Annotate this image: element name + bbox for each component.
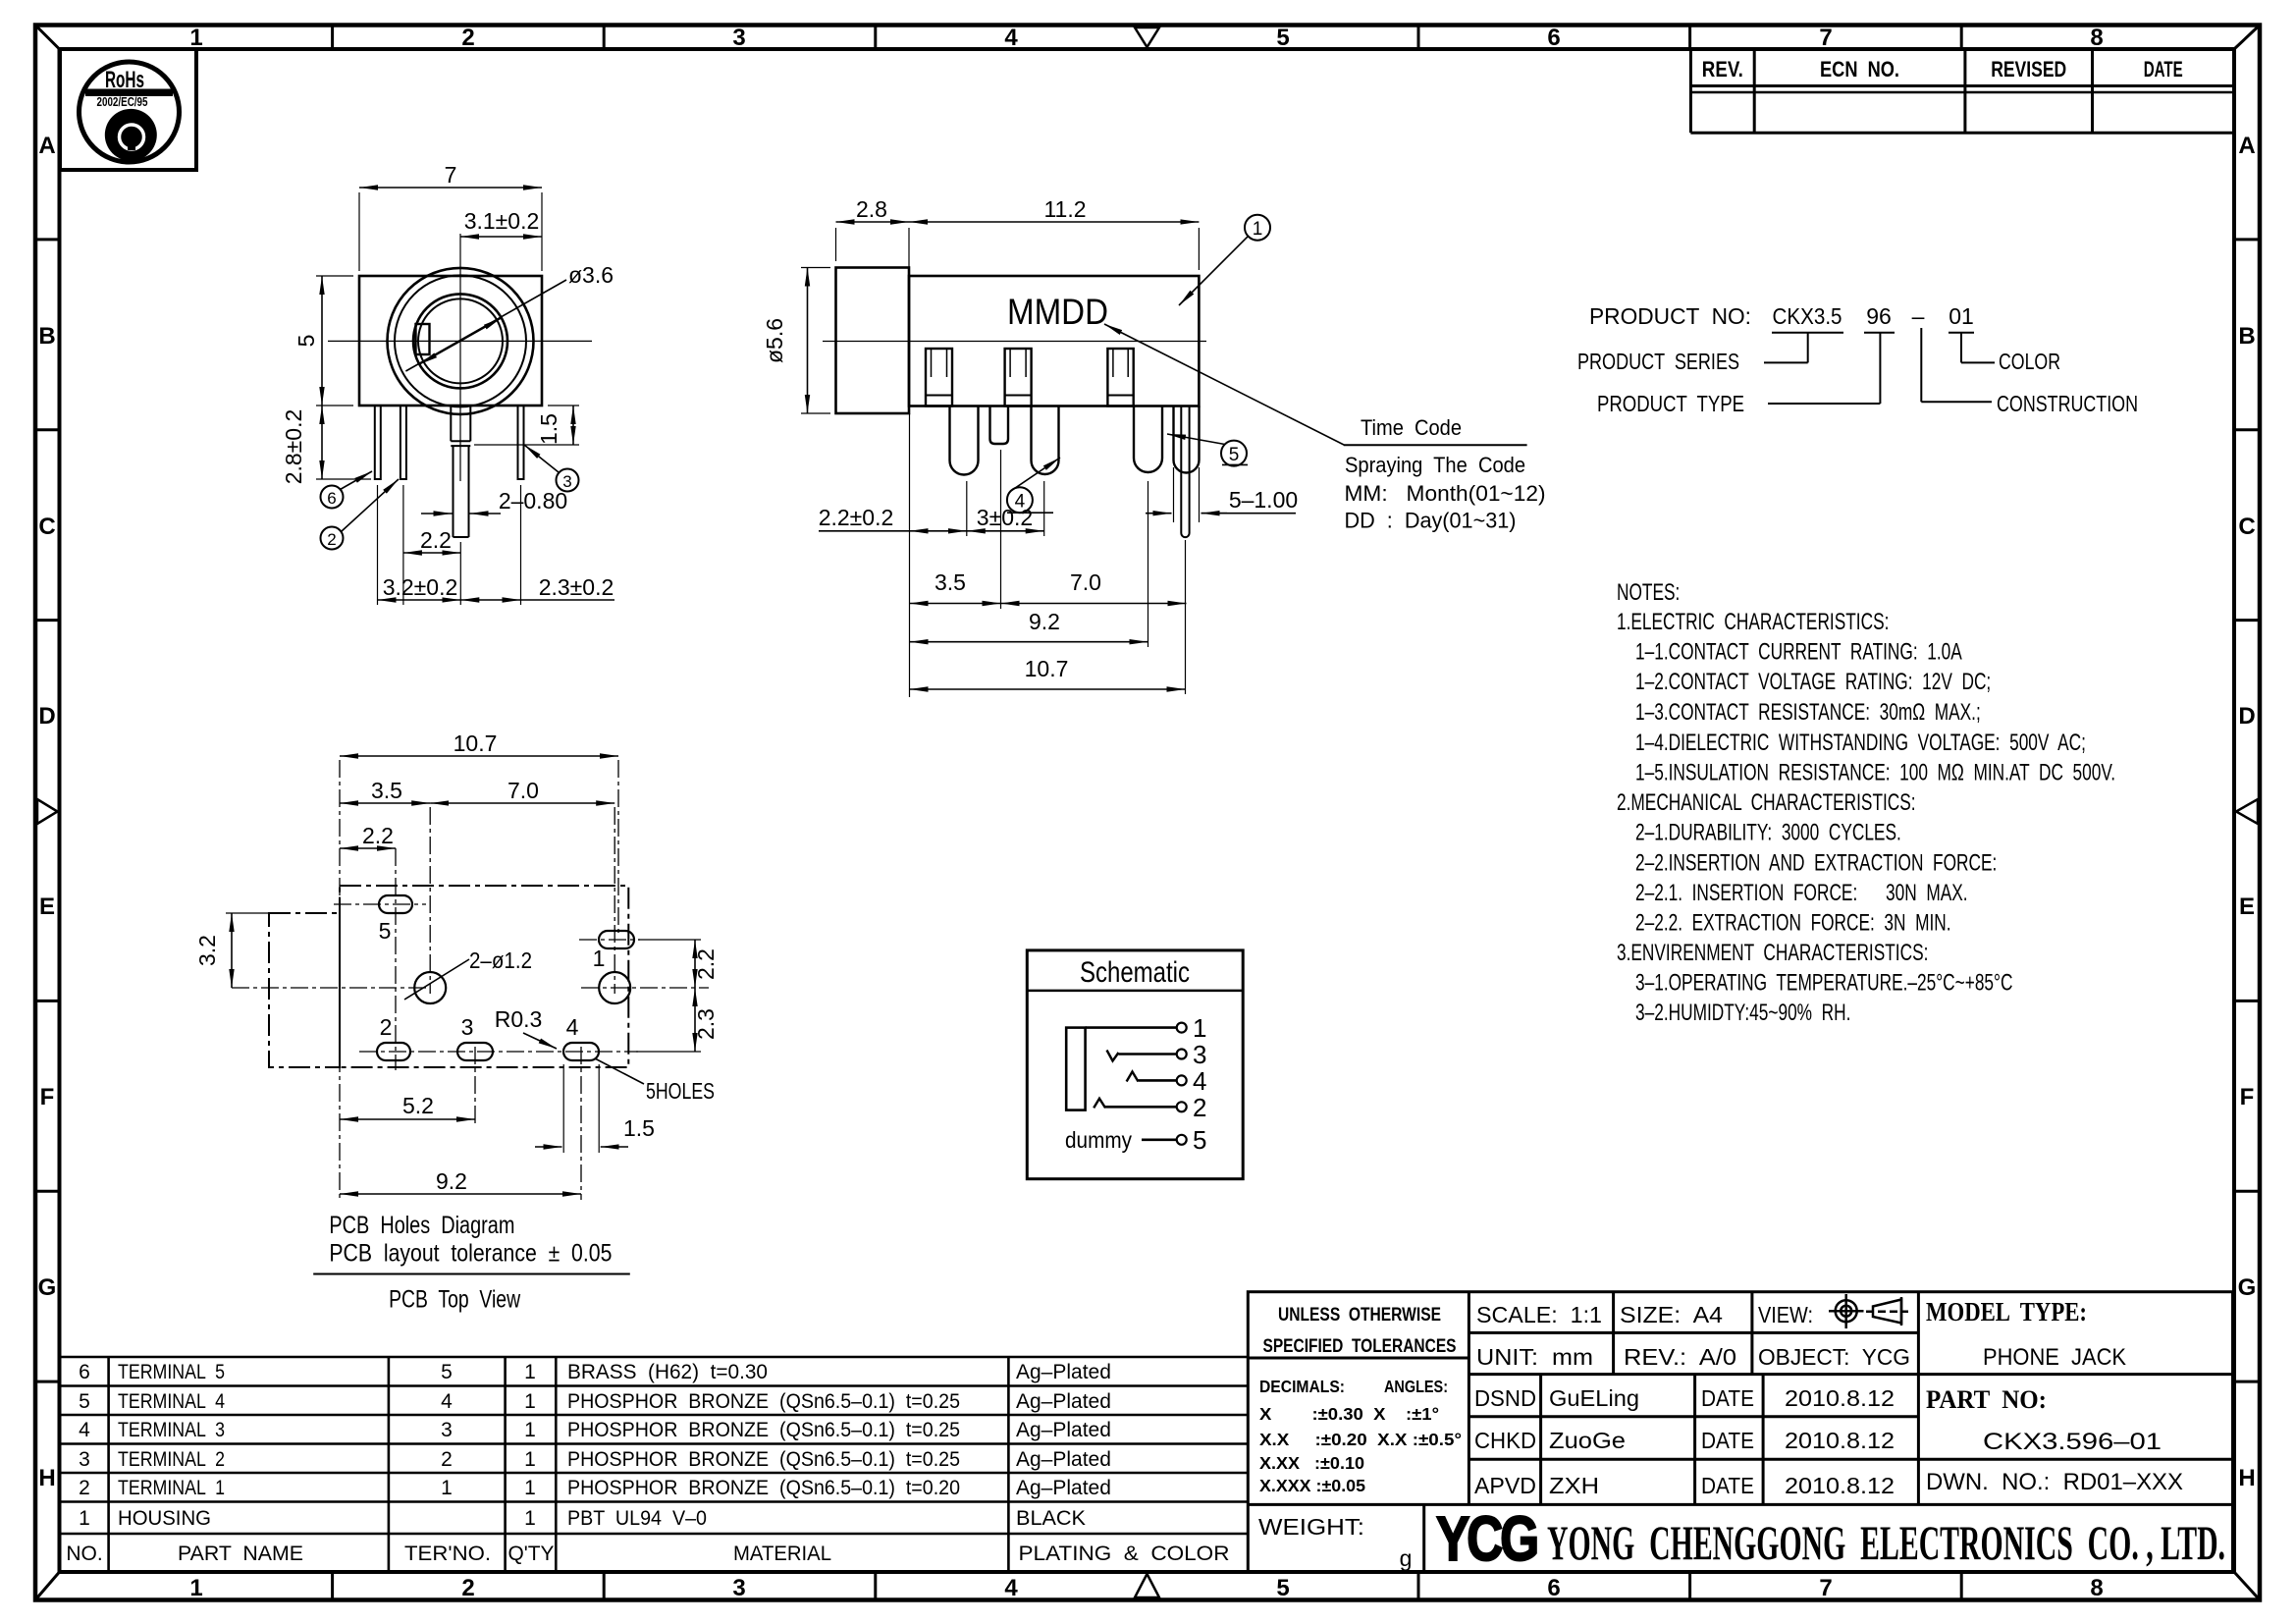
svg-text:3.2: 3.2 xyxy=(194,935,220,966)
svg-text:R0.3: R0.3 xyxy=(495,1006,543,1032)
svg-text:1: 1 xyxy=(1193,1013,1206,1043)
svg-text:DATE: DATE xyxy=(1701,1428,1754,1453)
svg-text:2: 2 xyxy=(79,1477,90,1499)
svg-text:TER'NO.: TER'NO. xyxy=(404,1543,491,1565)
svg-text:G: G xyxy=(2238,1274,2257,1301)
svg-text:6: 6 xyxy=(79,1361,90,1383)
svg-text:E: E xyxy=(2239,893,2255,920)
svg-text:B: B xyxy=(38,323,55,350)
svg-text:1: 1 xyxy=(524,1448,536,1471)
svg-text:REV.: A/0: REV.: A/0 xyxy=(1624,1344,1736,1370)
svg-text:F: F xyxy=(2240,1084,2255,1110)
svg-text:2: 2 xyxy=(461,25,474,51)
svg-text:dummy: dummy xyxy=(1065,1127,1132,1153)
svg-text:X.XXX :±0.05: X.XXX :±0.05 xyxy=(1259,1476,1365,1495)
svg-text:PHOSPHOR BRONZE (QSn6.5–0.1): PHOSPHOR BRONZE (QSn6.5–0.1) t=0.25 xyxy=(567,1419,960,1441)
svg-text:Q'TY: Q'TY xyxy=(508,1543,555,1565)
svg-text:Schematic: Schematic xyxy=(1080,956,1190,989)
svg-text:SPECIFIED TOLERANCES: SPECIFIED TOLERANCES xyxy=(1263,1336,1457,1357)
svg-text:2.2: 2.2 xyxy=(362,823,394,848)
svg-text:2: 2 xyxy=(380,1014,393,1040)
svg-text:1.ELECTRIC CHARACTERISTICS:: 1.ELECTRIC CHARACTERISTICS: xyxy=(1617,609,1889,634)
svg-text:2–1.DURABILITY: 3000 CYCLES.: 2–1.DURABILITY: 3000 CYCLES. xyxy=(1635,820,1901,845)
svg-text:1: 1 xyxy=(79,1507,90,1530)
svg-text:ZXH: ZXH xyxy=(1549,1473,1599,1498)
svg-text:D: D xyxy=(38,703,55,730)
svg-text:5: 5 xyxy=(1193,1125,1206,1155)
svg-text:2.3±0.2: 2.3±0.2 xyxy=(539,574,614,600)
svg-text:1.5: 1.5 xyxy=(623,1115,655,1141)
svg-text:NO.: NO. xyxy=(66,1543,102,1565)
svg-text:DECIMALS:: DECIMALS: xyxy=(1259,1377,1345,1396)
svg-text:1: 1 xyxy=(524,1507,536,1530)
svg-text:BLACK: BLACK xyxy=(1016,1507,1086,1530)
svg-text:2.8±0.2: 2.8±0.2 xyxy=(281,409,306,485)
svg-text:2: 2 xyxy=(461,1575,474,1601)
svg-text:YONG CHENGGONG ELECTRONICS: YONG CHENGGONG ELECTRONICS CO. , LTD. xyxy=(1547,1515,2225,1570)
svg-text:YCG: YCG xyxy=(1436,1503,1536,1574)
svg-text:5: 5 xyxy=(1229,445,1240,465)
svg-text:Ag–Plated: Ag–Plated xyxy=(1016,1419,1111,1441)
svg-text:3: 3 xyxy=(461,1014,474,1040)
svg-text:VIEW:: VIEW: xyxy=(1758,1302,1813,1327)
svg-text:PRODUCT NO:: PRODUCT NO: xyxy=(1589,303,1751,329)
svg-text:H: H xyxy=(2238,1465,2255,1491)
svg-text:5: 5 xyxy=(294,335,319,348)
svg-text:2: 2 xyxy=(327,530,336,549)
svg-text:PRODUCT TYPE: PRODUCT TYPE xyxy=(1597,391,1744,416)
svg-text:5HOLES: 5HOLES xyxy=(646,1078,715,1104)
svg-text:96: 96 xyxy=(1866,303,1892,329)
svg-text:–: – xyxy=(1912,303,1925,329)
svg-text:3.5: 3.5 xyxy=(934,569,966,595)
svg-text:3.2±0.2: 3.2±0.2 xyxy=(383,574,458,600)
svg-text:2.3: 2.3 xyxy=(693,1008,719,1040)
svg-text:2: 2 xyxy=(1193,1093,1206,1122)
svg-text:5: 5 xyxy=(379,918,392,944)
svg-text:9.2: 9.2 xyxy=(436,1168,467,1194)
svg-text:UNIT: mm: UNIT: mm xyxy=(1476,1344,1593,1370)
svg-text:Ag–Plated: Ag–Plated xyxy=(1016,1390,1111,1413)
svg-text:2.2: 2.2 xyxy=(693,948,719,980)
svg-text:ø5.6: ø5.6 xyxy=(762,318,787,363)
svg-text:2–2.INSERTION AND EXTRACTION: 2–2.INSERTION AND EXTRACTION FORCE: xyxy=(1635,850,1997,876)
svg-text:5.2: 5.2 xyxy=(402,1093,434,1118)
svg-text:OBJECT: YCG: OBJECT: YCG xyxy=(1758,1344,1910,1370)
svg-text:4: 4 xyxy=(1004,25,1018,51)
svg-text:6: 6 xyxy=(1547,1575,1560,1601)
svg-text:3: 3 xyxy=(732,1575,745,1601)
svg-text:8: 8 xyxy=(2090,1575,2103,1601)
svg-text:E: E xyxy=(39,893,55,920)
svg-text:COLOR: COLOR xyxy=(1999,349,2060,374)
svg-text:1–2.CONTACT VOLTAGE RATING:: 1–2.CONTACT VOLTAGE RATING: 12V DC; xyxy=(1635,669,1991,694)
svg-text:CONSTRUCTION: CONSTRUCTION xyxy=(1997,391,2138,416)
svg-text:PCB layout tolerance ± 0.0: PCB layout tolerance ± 0.05 xyxy=(329,1240,612,1268)
svg-text:5: 5 xyxy=(79,1390,90,1413)
svg-text:3: 3 xyxy=(79,1448,90,1471)
svg-text:2.2±0.2: 2.2±0.2 xyxy=(819,505,894,530)
svg-text:3±0.2: 3±0.2 xyxy=(977,505,1033,530)
svg-text:TERMINAL 5: TERMINAL 5 xyxy=(118,1361,225,1383)
svg-text:5: 5 xyxy=(1276,25,1289,51)
svg-text:H: H xyxy=(38,1465,55,1491)
svg-text:1: 1 xyxy=(1253,219,1263,240)
svg-text:2–2.1. INSERTION FORCE:: 2–2.1. INSERTION FORCE: 30N MAX. xyxy=(1635,880,1968,905)
svg-text:A: A xyxy=(38,133,55,159)
svg-text:4: 4 xyxy=(1004,1575,1018,1601)
svg-text:1: 1 xyxy=(593,946,606,971)
svg-text:F: F xyxy=(40,1084,55,1110)
svg-text:PHOSPHOR BRONZE (QSn6.5–0.1): PHOSPHOR BRONZE (QSn6.5–0.1) t=0.20 xyxy=(567,1477,960,1499)
svg-text:CHKD: CHKD xyxy=(1474,1428,1536,1453)
svg-text:C: C xyxy=(2238,514,2255,540)
svg-text:2.MECHANICAL CHARACTERISTICS:: 2.MECHANICAL CHARACTERISTICS: xyxy=(1617,789,1916,815)
svg-text:8: 8 xyxy=(2090,25,2103,51)
svg-text:TERMINAL 2: TERMINAL 2 xyxy=(118,1448,225,1471)
svg-text:C: C xyxy=(38,514,55,540)
svg-text:2–2.2. EXTRACTION FORCE: 3N: 2–2.2. EXTRACTION FORCE: 3N MIN. xyxy=(1635,910,1951,936)
svg-text:1: 1 xyxy=(441,1477,453,1499)
svg-text:PRODUCT SERIES: PRODUCT SERIES xyxy=(1577,349,1739,374)
svg-text:PHOSPHOR BRONZE (QSn6.5–0.1): PHOSPHOR BRONZE (QSn6.5–0.1) t=0.25 xyxy=(567,1448,960,1471)
svg-text:4: 4 xyxy=(441,1390,453,1413)
svg-text:2: 2 xyxy=(441,1448,453,1471)
svg-text:3: 3 xyxy=(441,1419,453,1441)
svg-text:CKX3.596–01: CKX3.596–01 xyxy=(1983,1429,2162,1455)
svg-text:1–3.CONTACT RESISTANCE: 30mΩ: 1–3.CONTACT RESISTANCE: 30mΩ MAX.; xyxy=(1635,699,1981,725)
svg-text:7.0: 7.0 xyxy=(1070,569,1101,595)
svg-text:1–5.INSULATION RESISTANCE: 1: 1–5.INSULATION RESISTANCE: 100 MΩ MIN.AT… xyxy=(1635,760,2115,785)
svg-text:REVISED: REVISED xyxy=(1991,57,2066,81)
svg-text:2010.8.12: 2010.8.12 xyxy=(1785,1385,1895,1411)
svg-text:WEIGHT:: WEIGHT: xyxy=(1258,1514,1364,1540)
svg-text:PBT UL94 V–0: PBT UL94 V–0 xyxy=(567,1507,707,1530)
svg-text:7.0: 7.0 xyxy=(507,778,539,803)
svg-text:2010.8.12: 2010.8.12 xyxy=(1785,1428,1895,1453)
svg-text:PCB Top View: PCB Top View xyxy=(389,1286,521,1314)
svg-text:B: B xyxy=(2238,323,2255,350)
svg-text:HOUSING: HOUSING xyxy=(118,1507,211,1530)
svg-text:7: 7 xyxy=(1819,1575,1832,1601)
svg-text:PHOSPHOR BRONZE (QSn6.5–0.1): PHOSPHOR BRONZE (QSn6.5–0.1) t=0.25 xyxy=(567,1390,960,1413)
svg-text:DATE: DATE xyxy=(1701,1473,1754,1498)
svg-text:3.5: 3.5 xyxy=(371,778,402,803)
svg-text:2–0.80: 2–0.80 xyxy=(499,488,567,514)
svg-text:Ag–Plated: Ag–Plated xyxy=(1016,1361,1111,1383)
svg-text:X :±0.30 X :±1°: X :±0.30 X :±1° xyxy=(1259,1404,1439,1424)
svg-text:1: 1 xyxy=(189,25,202,51)
svg-text:2.2: 2.2 xyxy=(420,527,452,553)
svg-text:PLATING & COLOR: PLATING & COLOR xyxy=(1019,1543,1230,1565)
svg-text:3–2.HUMIDTY:45~90% RH.: 3–2.HUMIDTY:45~90% RH. xyxy=(1635,1000,1850,1025)
svg-text:PART NO:: PART NO: xyxy=(1926,1385,2047,1414)
svg-text:Time Code: Time Code xyxy=(1361,415,1462,440)
svg-text:X.X :±0.20 X.X :±0.5°: X.X :±0.20 X.X :±0.5° xyxy=(1259,1430,1462,1449)
svg-text:1–4.DIELECTRIC WITHSTANDING: 1–4.DIELECTRIC WITHSTANDING VOLTAGE: 500… xyxy=(1635,730,2086,755)
svg-text:MMDD: MMDD xyxy=(1007,292,1108,332)
svg-text:APVD: APVD xyxy=(1474,1473,1536,1498)
svg-text:10.7: 10.7 xyxy=(1025,656,1069,681)
svg-text:1: 1 xyxy=(524,1390,536,1413)
svg-text:6: 6 xyxy=(1547,25,1560,51)
svg-text:5–1.00: 5–1.00 xyxy=(1229,487,1298,513)
svg-text:Ag–Plated: Ag–Plated xyxy=(1016,1477,1111,1499)
svg-text:DWN. NO.: RD01–XXX: DWN. NO.: RD01–XXX xyxy=(1926,1469,2183,1495)
svg-text:5: 5 xyxy=(1276,1575,1289,1601)
svg-text:ø3.6: ø3.6 xyxy=(568,262,614,288)
svg-text:PHONE JACK: PHONE JACK xyxy=(1983,1344,2126,1371)
svg-text:10.7: 10.7 xyxy=(454,731,498,756)
svg-text:1.5: 1.5 xyxy=(536,413,561,445)
svg-text:MM: Month(01~12): MM: Month(01~12) xyxy=(1345,481,1546,506)
svg-text:1–1.CONTACT CURRENT RATING:: 1–1.CONTACT CURRENT RATING: 1.0A xyxy=(1635,639,1962,665)
svg-text:DATE: DATE xyxy=(1701,1385,1754,1411)
svg-text:A: A xyxy=(2238,133,2255,159)
svg-text:1: 1 xyxy=(189,1575,202,1601)
svg-text:MODEL TYPE:: MODEL TYPE: xyxy=(1926,1297,2087,1326)
svg-text:TERMINAL 3: TERMINAL 3 xyxy=(118,1419,225,1441)
svg-text:7: 7 xyxy=(1819,25,1832,51)
svg-text:TERMINAL 4: TERMINAL 4 xyxy=(118,1390,225,1413)
svg-text:3–1.OPERATING TEMPERATURE.–25: 3–1.OPERATING TEMPERATURE.–25°C~+85°C xyxy=(1635,970,2012,996)
svg-text:Spraying The Code: Spraying The Code xyxy=(1345,453,1525,477)
svg-text:4: 4 xyxy=(79,1419,90,1441)
svg-text:SCALE: 1:1: SCALE: 1:1 xyxy=(1476,1302,1602,1327)
svg-text:9.2: 9.2 xyxy=(1029,609,1060,634)
svg-text:2.8: 2.8 xyxy=(856,196,887,222)
svg-text:TERMINAL 1: TERMINAL 1 xyxy=(118,1477,225,1499)
svg-text:1: 1 xyxy=(524,1361,536,1383)
svg-text:Ag–Plated: Ag–Plated xyxy=(1016,1448,1111,1471)
svg-text:3: 3 xyxy=(732,25,745,51)
svg-text:1: 1 xyxy=(524,1477,536,1499)
svg-text:ECN NO.: ECN NO. xyxy=(1820,57,1899,81)
svg-text:REV.: REV. xyxy=(1702,57,1743,81)
svg-text:g: g xyxy=(1400,1545,1413,1571)
svg-text:ZuoGe: ZuoGe xyxy=(1549,1428,1626,1453)
svg-text:4: 4 xyxy=(1193,1066,1206,1096)
svg-text:2002/EC/95: 2002/EC/95 xyxy=(97,94,148,109)
svg-text:NOTES:: NOTES: xyxy=(1617,579,1680,605)
svg-text:PCB Holes Diagram: PCB Holes Diagram xyxy=(329,1212,514,1239)
svg-text:ANGLES:: ANGLES: xyxy=(1384,1377,1448,1396)
svg-text:1: 1 xyxy=(524,1419,536,1441)
svg-text:6: 6 xyxy=(327,489,336,508)
svg-text:5: 5 xyxy=(441,1361,453,1383)
svg-text:BRASS (H62) t=0.30: BRASS (H62) t=0.30 xyxy=(567,1361,768,1383)
svg-text:4: 4 xyxy=(566,1014,579,1040)
svg-text:3: 3 xyxy=(1193,1040,1206,1069)
svg-text:7: 7 xyxy=(445,162,457,188)
svg-text:3.ENVIRENMENT CHARACTERISTICS: 3.ENVIRENMENT CHARACTERISTICS: xyxy=(1617,940,1928,965)
svg-text:DATE: DATE xyxy=(2144,57,2183,81)
svg-text:PART NAME: PART NAME xyxy=(178,1543,303,1565)
svg-text:01: 01 xyxy=(1949,303,1974,329)
svg-text:2010.8.12: 2010.8.12 xyxy=(1785,1473,1895,1498)
svg-text:DD : Day(01~31): DD : Day(01~31) xyxy=(1345,509,1517,533)
svg-text:11.2: 11.2 xyxy=(1043,196,1086,222)
svg-text:2–ø1.2: 2–ø1.2 xyxy=(469,947,532,973)
svg-text:MATERIAL: MATERIAL xyxy=(733,1543,831,1565)
svg-text:3.1±0.2: 3.1±0.2 xyxy=(464,208,540,234)
svg-text:UNLESS OTHERWISE: UNLESS OTHERWISE xyxy=(1278,1305,1441,1326)
svg-text:X.XX :±0.10: X.XX :±0.10 xyxy=(1259,1453,1364,1473)
svg-text:DSND: DSND xyxy=(1474,1385,1536,1411)
svg-text:G: G xyxy=(38,1274,57,1301)
svg-text:D: D xyxy=(2238,703,2255,730)
svg-text:GuELing: GuELing xyxy=(1549,1385,1639,1411)
svg-text:SIZE: A4: SIZE: A4 xyxy=(1620,1302,1723,1327)
svg-text:CKX3.5: CKX3.5 xyxy=(1773,303,1842,329)
